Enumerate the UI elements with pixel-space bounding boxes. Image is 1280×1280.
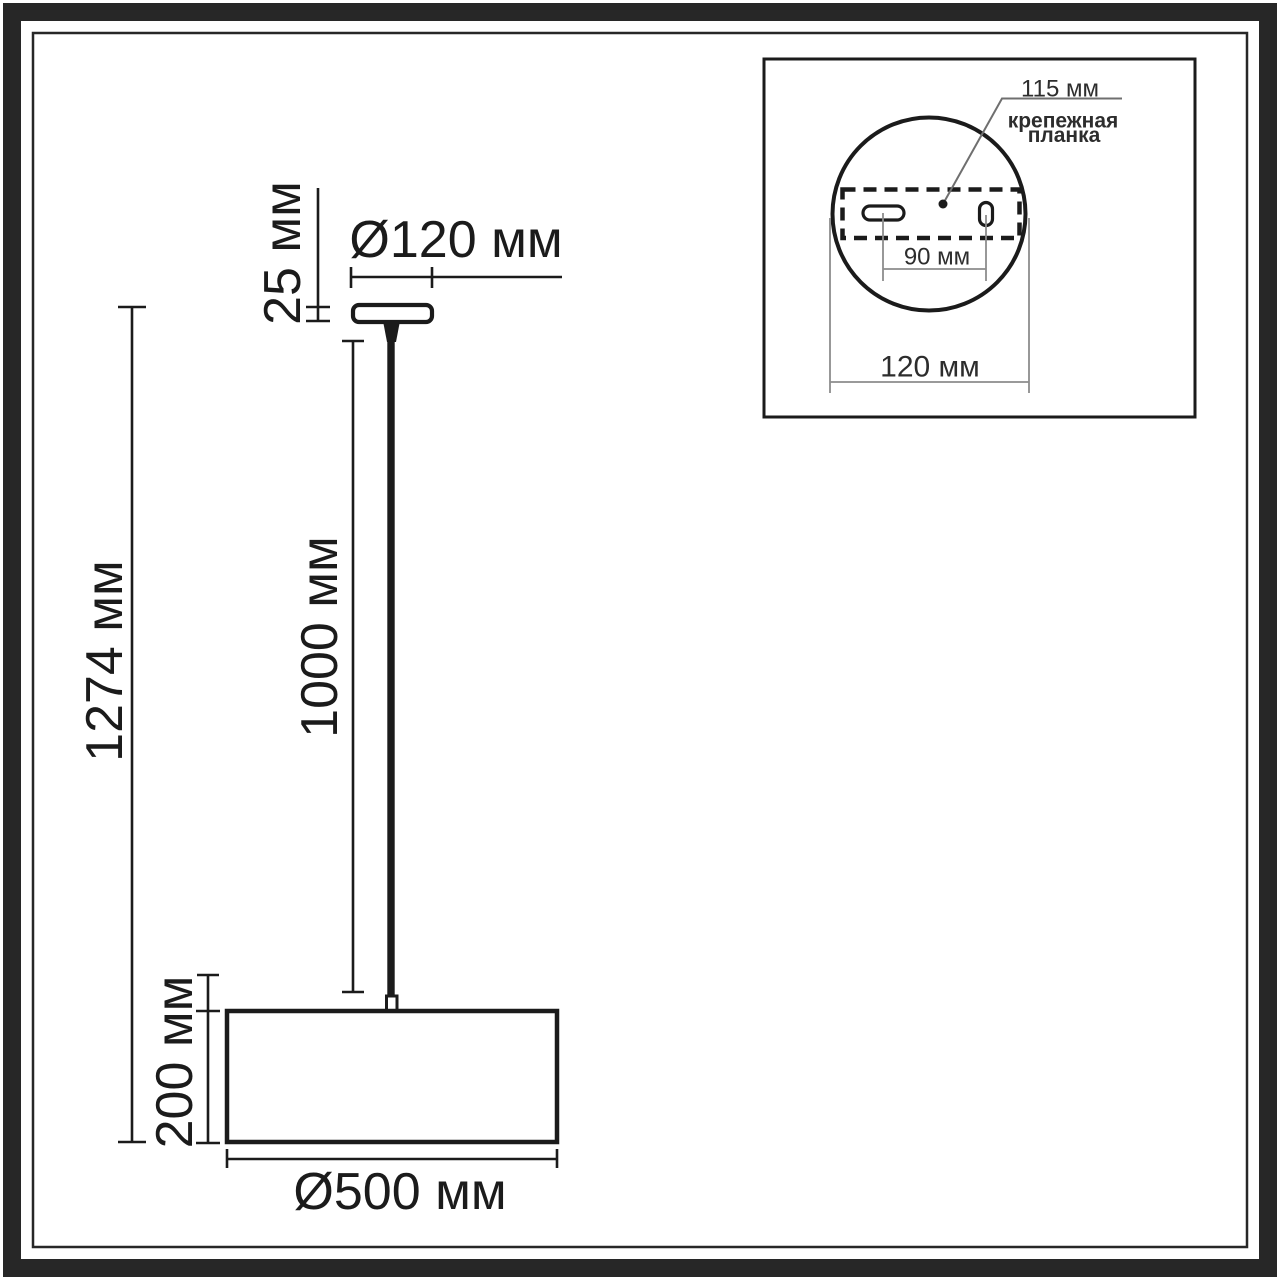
mounting-plate-circle [833, 118, 1026, 311]
lamp-dimension-drawing: 1274 мм 25 мм Ø120 мм 1000 мм 200 мм Ø50… [0, 0, 1280, 1280]
rod-cone-joint [383, 321, 400, 342]
plate-diameter-label: 120 мм [880, 351, 980, 384]
ceiling-canopy [353, 305, 432, 322]
suspension-rod [387, 340, 394, 996]
drawing-canvas: 1274 мм 25 мм Ø120 мм 1000 мм 200 мм Ø50… [0, 0, 1280, 1280]
lamp-shade [227, 1011, 557, 1142]
bracket-leader-dot [939, 200, 948, 209]
shade-diameter-label: Ø500 мм [293, 1163, 506, 1221]
dim-canopy-diameter-lines [351, 267, 562, 288]
bracket-length-label: 115 мм [1021, 75, 1099, 102]
shade-height-label: 200 мм [146, 976, 204, 1149]
rod-length-label: 1000 мм [291, 536, 349, 738]
canopy-diameter-label: Ø120 мм [349, 211, 562, 269]
hole-spacing-label: 90 мм [904, 243, 970, 270]
canopy-thickness-label: 25 мм [254, 181, 312, 325]
inset-top-view: 115 мм крепежная планка 90 мм 120 мм [764, 59, 1195, 417]
overall-height-label: 1274 мм [76, 560, 134, 762]
bracket-caption-line2: планка [1028, 124, 1101, 147]
